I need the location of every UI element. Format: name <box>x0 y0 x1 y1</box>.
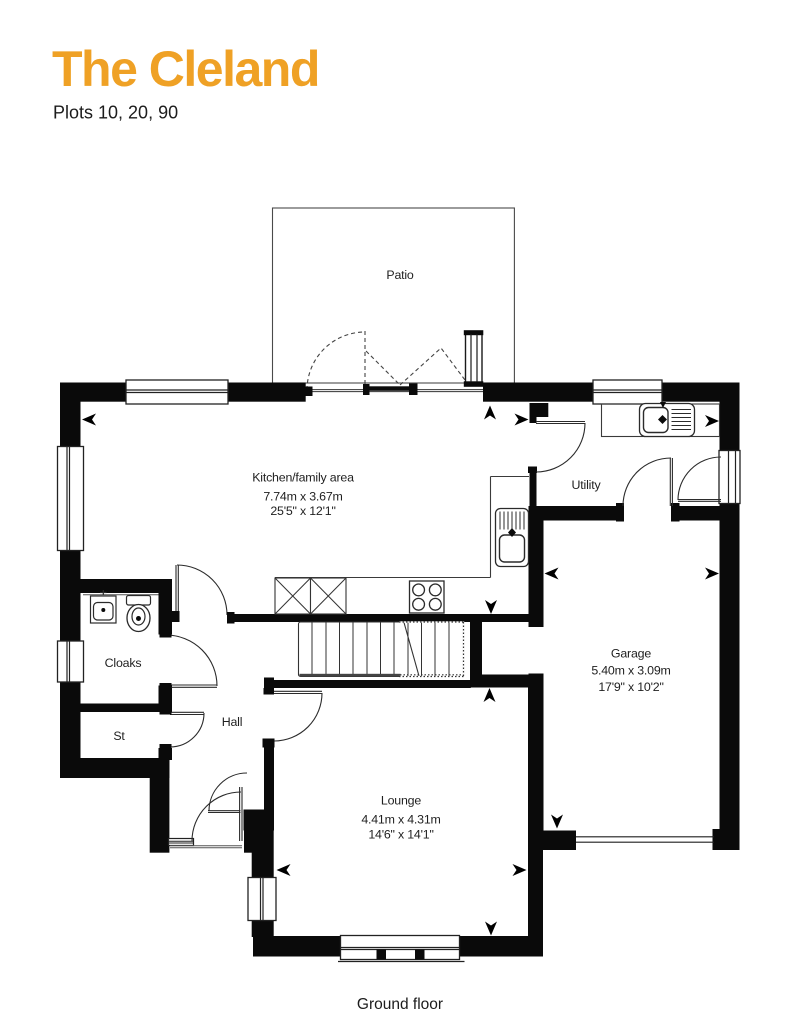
svg-text:17'9" x 10'2": 17'9" x 10'2" <box>598 680 663 694</box>
svg-text:The Cleland: The Cleland <box>52 41 319 97</box>
svg-text:5.40m x 3.09m: 5.40m x 3.09m <box>591 664 670 678</box>
svg-text:4.41m x 4.31m: 4.41m x 4.31m <box>361 813 440 827</box>
svg-text:Plots 10, 20, 90: Plots 10, 20, 90 <box>53 103 178 123</box>
svg-text:Ground floor: Ground floor <box>357 996 443 1013</box>
svg-text:St: St <box>113 729 125 743</box>
svg-text:Kitchen/family area: Kitchen/family area <box>252 471 354 485</box>
svg-text:Cloaks: Cloaks <box>105 656 142 670</box>
svg-text:25'5" x 12'1": 25'5" x 12'1" <box>270 504 335 518</box>
svg-text:7.74m x 3.67m: 7.74m x 3.67m <box>263 490 342 504</box>
svg-text:Patio: Patio <box>386 268 414 282</box>
svg-text:Hall: Hall <box>222 715 243 729</box>
svg-text:14'6" x 14'1": 14'6" x 14'1" <box>368 828 433 842</box>
svg-text:Lounge: Lounge <box>381 794 421 808</box>
svg-text:Utility: Utility <box>572 478 602 492</box>
svg-text:Garage: Garage <box>611 647 651 661</box>
